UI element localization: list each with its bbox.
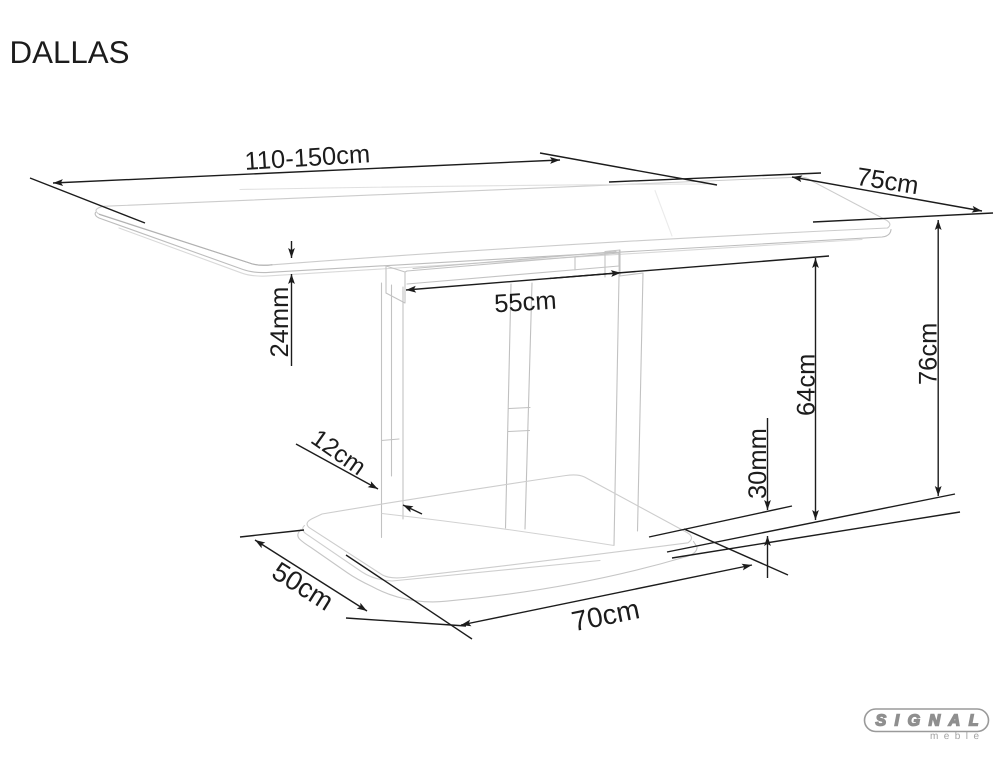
svg-text:24mm: 24mm xyxy=(266,287,294,358)
svg-text:30mm: 30mm xyxy=(744,428,772,499)
svg-text:meble: meble xyxy=(930,731,979,742)
svg-text:12cm: 12cm xyxy=(306,425,371,481)
svg-text:76cm: 76cm xyxy=(915,323,943,385)
svg-text:110-150cm: 110-150cm xyxy=(244,140,371,176)
svg-text:55cm: 55cm xyxy=(493,287,557,319)
svg-text:DALLAS: DALLAS xyxy=(10,34,130,70)
svg-text:75cm: 75cm xyxy=(855,163,921,200)
svg-text:64cm: 64cm xyxy=(793,354,821,416)
svg-text:SIGNAL: SIGNAL xyxy=(876,713,979,730)
svg-text:50cm: 50cm xyxy=(267,556,339,616)
